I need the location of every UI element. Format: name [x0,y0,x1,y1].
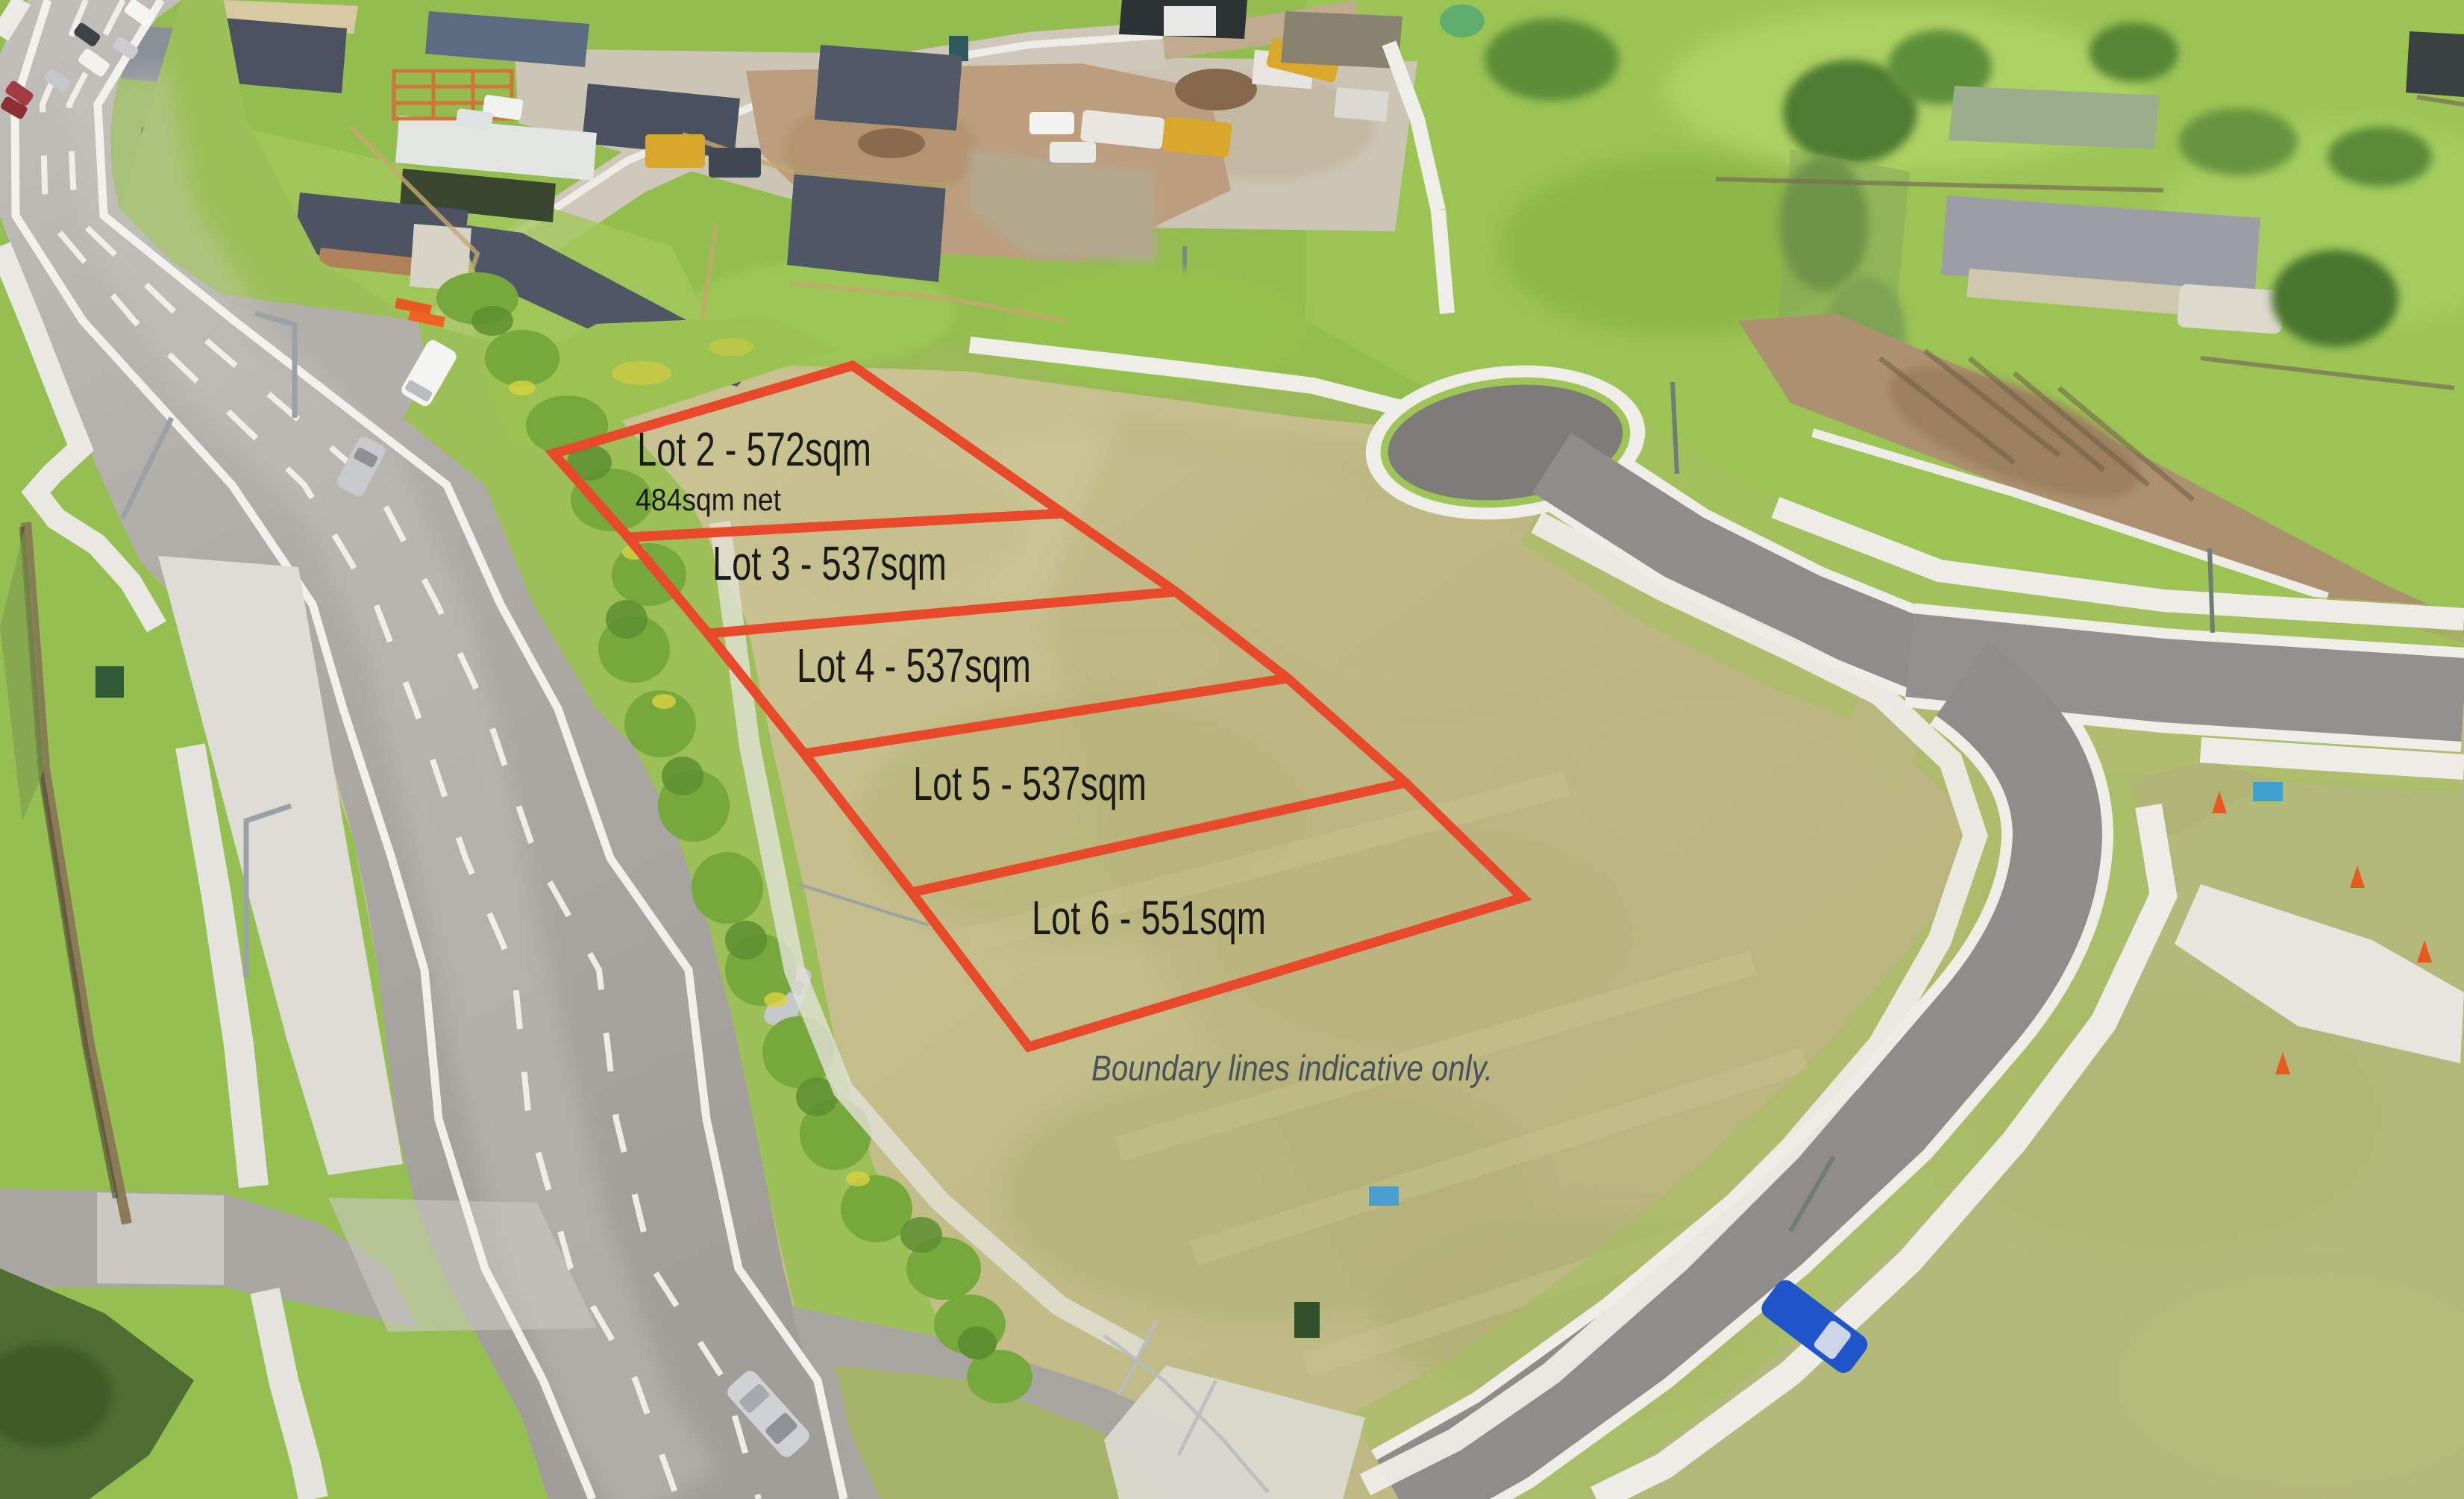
svg-text:Boundary lines indicative only: Boundary lines indicative only. [1091,1049,1493,1089]
svg-text:Lot 6 - 551sqm: Lot 6 - 551sqm [1032,891,1266,945]
svg-text:Lot 5 - 537sqm: Lot 5 - 537sqm [913,757,1147,810]
svg-text:484sqm net: 484sqm net [636,482,781,517]
svg-text:Lot 4 - 537sqm: Lot 4 - 537sqm [797,639,1031,692]
svg-text:Lot 3 - 537sqm: Lot 3 - 537sqm [712,536,947,590]
svg-text:Lot 2 - 572sqm: Lot 2 - 572sqm [637,422,871,476]
